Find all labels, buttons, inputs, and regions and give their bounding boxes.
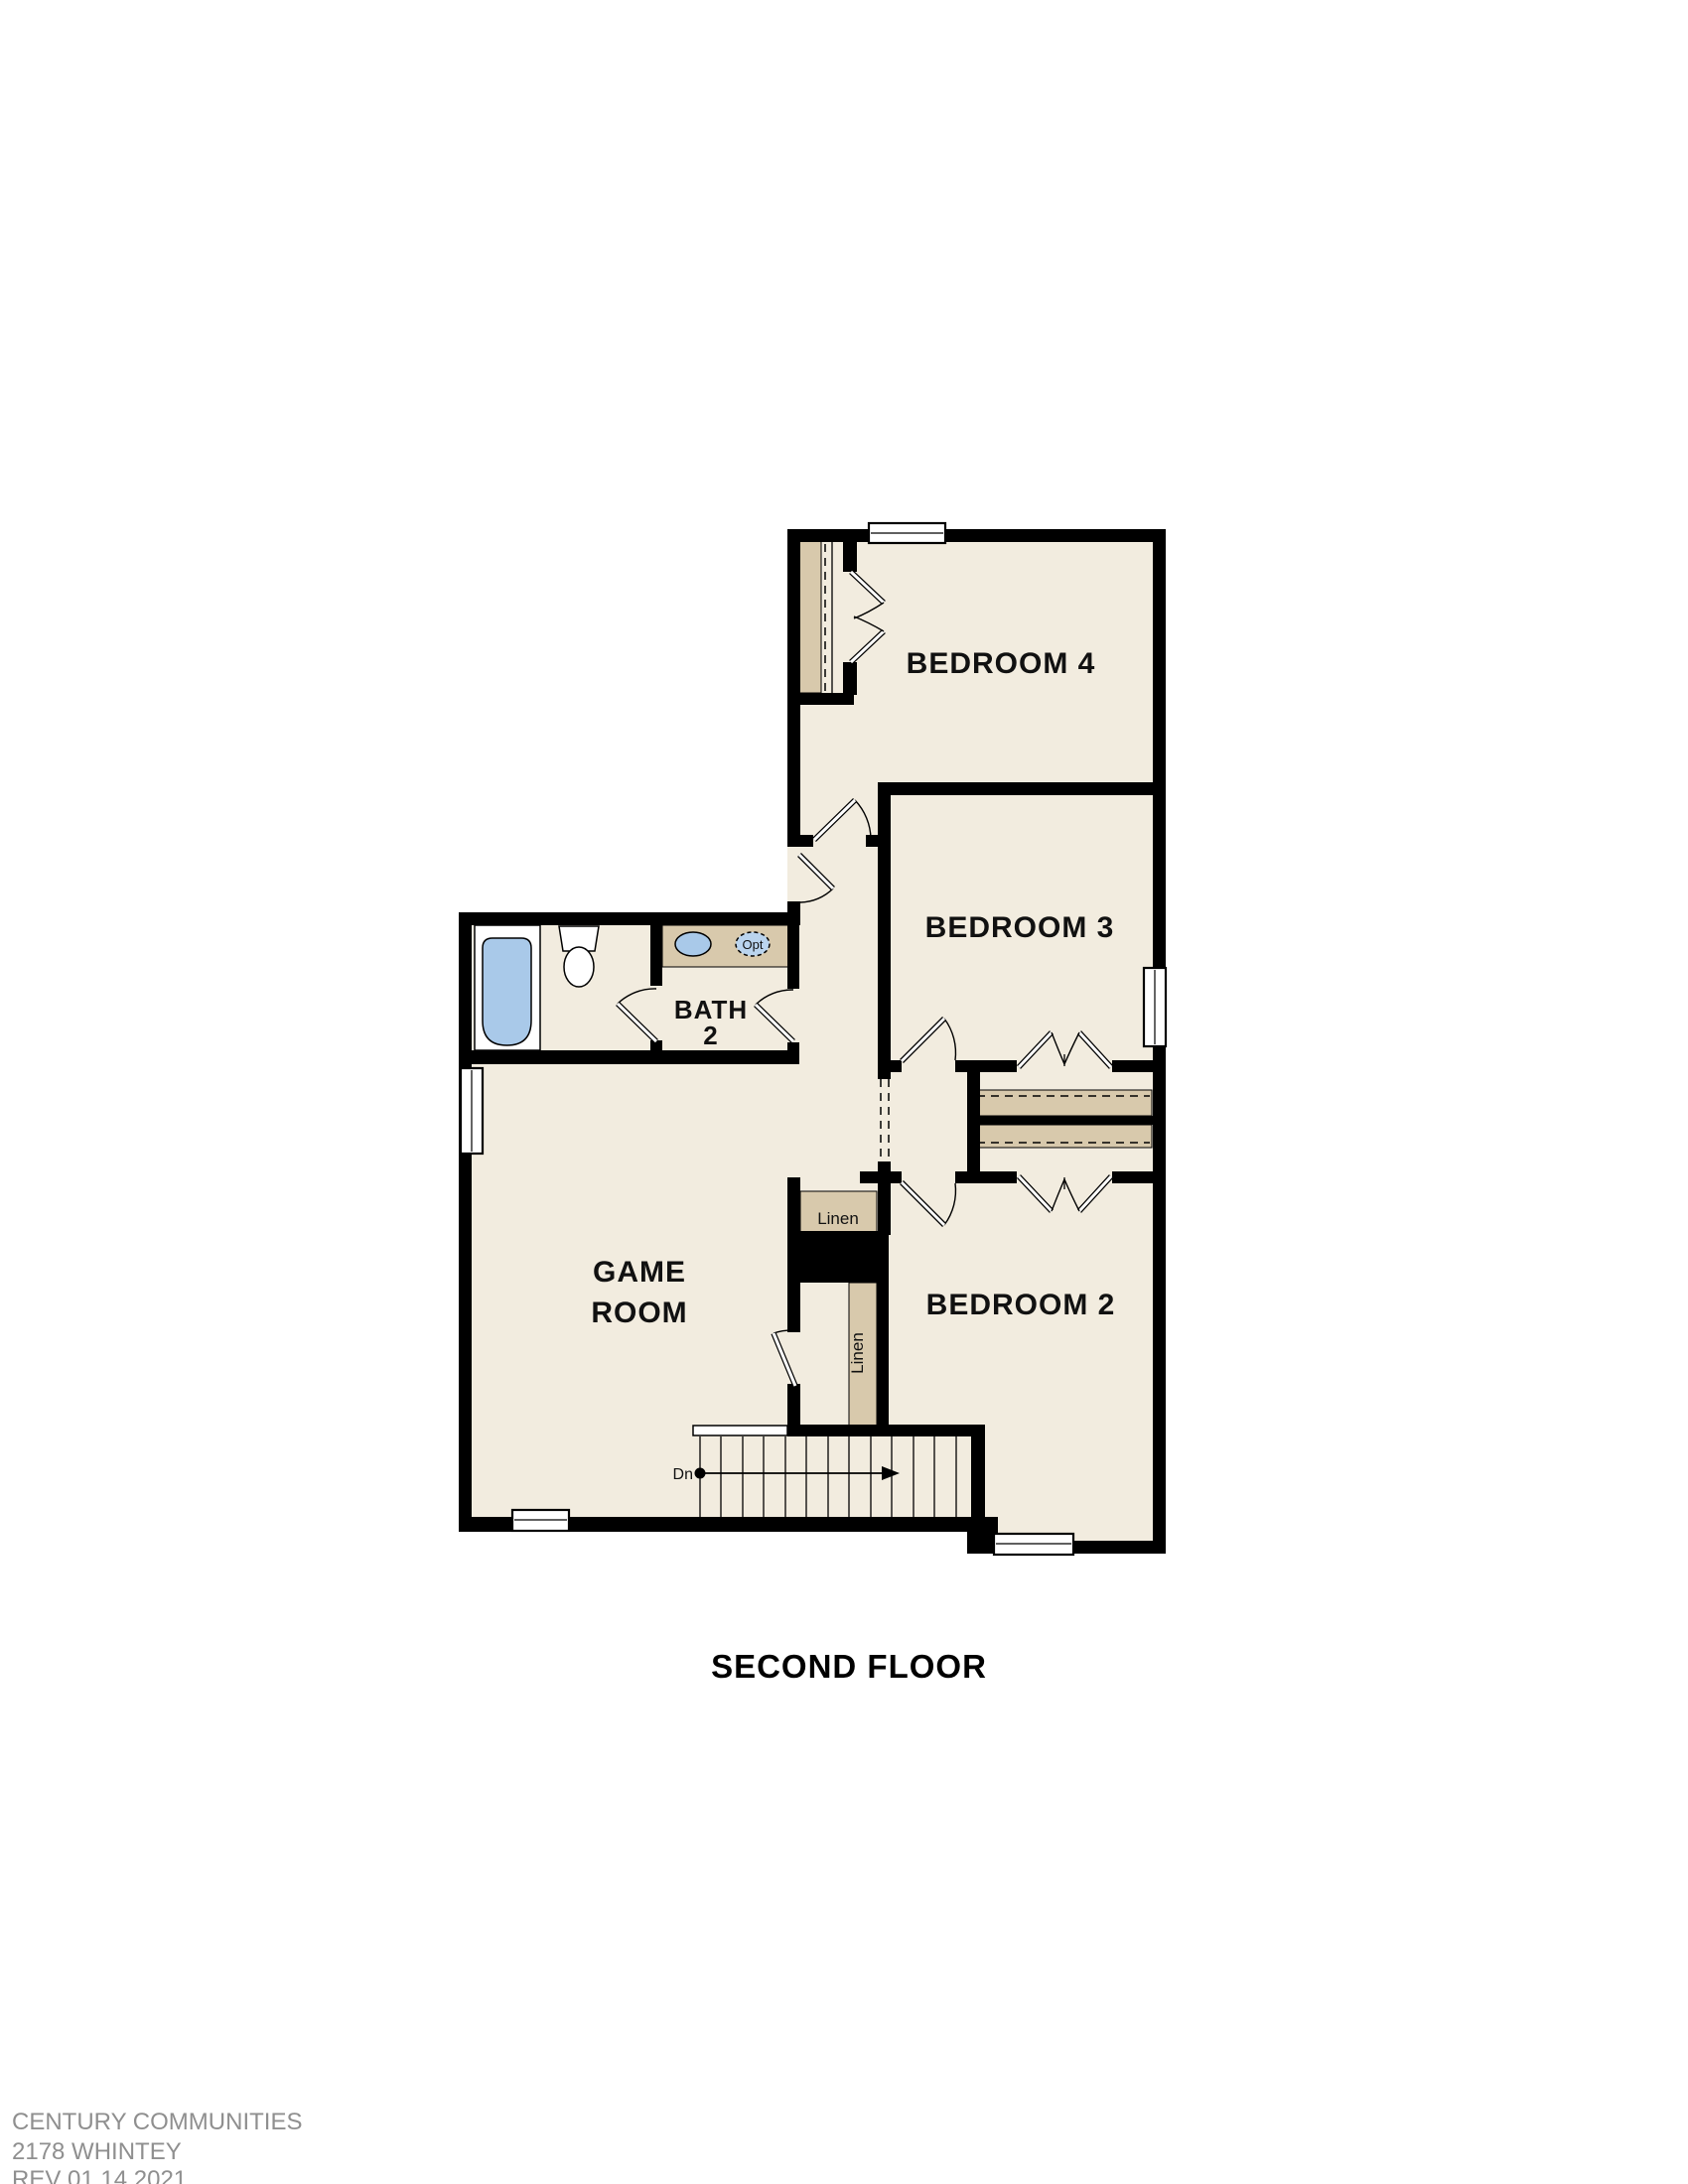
page-title: SECOND FLOOR — [711, 1648, 987, 1685]
toilet-bowl — [564, 947, 594, 987]
footer-revision-date: REV 01.14.2021 — [12, 2166, 187, 2184]
room-label-bedroom3: BEDROOM 3 — [925, 911, 1115, 944]
window-game-room-bottom — [512, 1510, 569, 1531]
label-linen-hall: Linen — [817, 1209, 859, 1228]
bedroom3-closet-rod — [975, 1090, 1152, 1116]
bedroom2-closet-rod — [975, 1125, 1152, 1148]
footer: CENTURY COMMUNITIES 2178 WHINTEY REV 01.… — [12, 2109, 302, 2184]
room-label-bath2-line2: 2 — [703, 1021, 718, 1050]
floor-plan-page: Dn BEDROOM 4 BEDROOM 3 BEDROOM 2 BATH 2 … — [0, 0, 1688, 2184]
label-optional-sink: Opt — [743, 937, 764, 952]
vanity-sink — [675, 932, 711, 956]
room-label-game-line1: GAME — [593, 1256, 686, 1289]
room-label-bedroom2: BEDROOM 2 — [926, 1289, 1116, 1321]
chase — [787, 1231, 884, 1283]
window-bedroom2 — [994, 1534, 1073, 1555]
window-bedroom4 — [869, 523, 945, 543]
bathtub — [483, 938, 531, 1045]
label-linen-stair: Linen — [848, 1332, 867, 1374]
window-game-room-left — [461, 1068, 483, 1154]
footer-company: CENTURY COMMUNITIES — [12, 2109, 302, 2135]
bedroom4-closet-shelf — [799, 541, 821, 693]
room-label-game-line2: ROOM — [591, 1297, 687, 1329]
window-bedroom3 — [1144, 968, 1166, 1046]
stair-rail — [693, 1426, 787, 1435]
room-label-bedroom4: BEDROOM 4 — [907, 647, 1096, 680]
stair-direction-label: Dn — [673, 1466, 693, 1483]
floor-plan-drawing: Dn BEDROOM 4 BEDROOM 3 BEDROOM 2 BATH 2 … — [0, 0, 1688, 2184]
footer-plan-number: 2178 WHINTEY — [12, 2138, 182, 2165]
